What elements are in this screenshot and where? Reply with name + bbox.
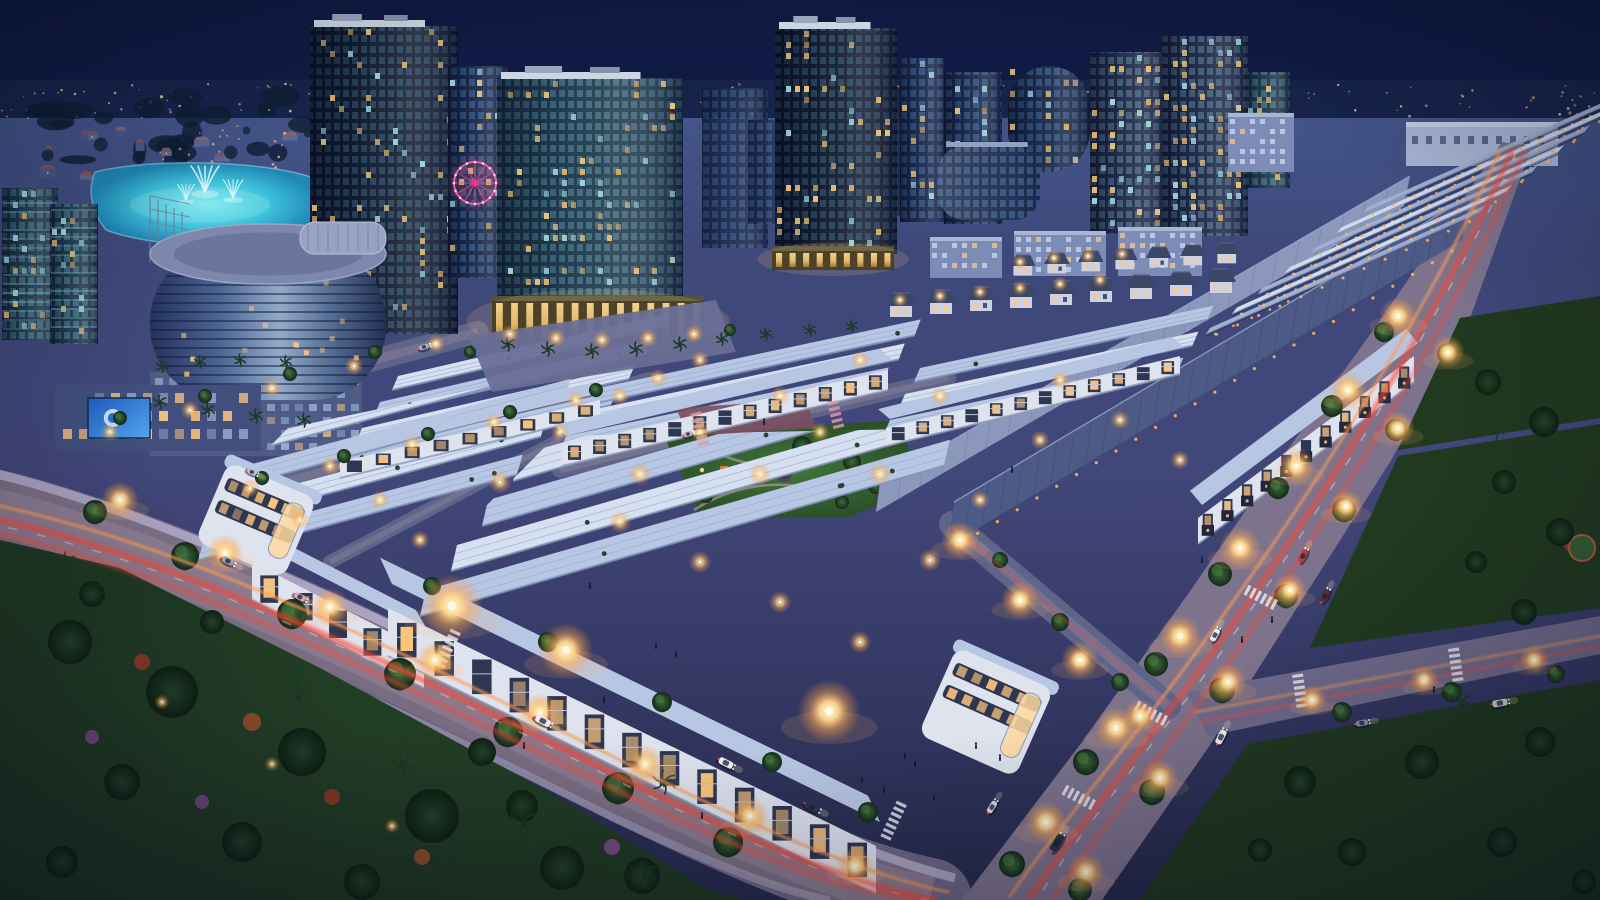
- aerial-city-render: [0, 0, 1600, 900]
- vignette: [0, 0, 1600, 900]
- vignette-overlay: [0, 0, 1600, 900]
- aerial-city-render-stage: [0, 0, 1600, 900]
